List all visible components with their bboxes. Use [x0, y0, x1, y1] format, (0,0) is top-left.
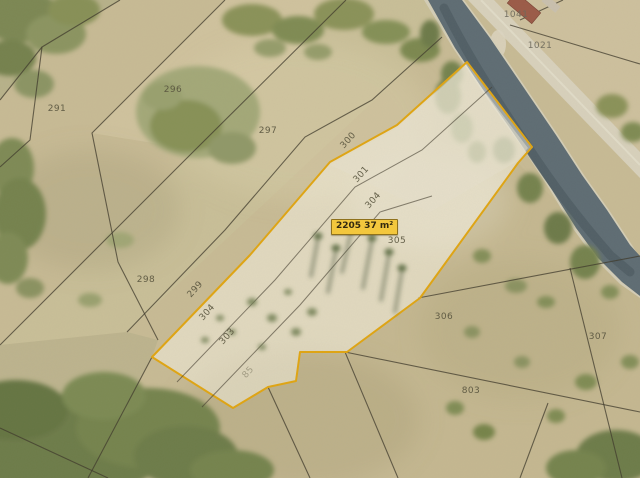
grain-overlay [0, 0, 640, 478]
parcel-label: 297 [259, 126, 277, 136]
parcel-label: 1041 [504, 10, 529, 20]
map-canvas[interactable]: 1041 1021 291 296 297 300 301 304 305 29… [0, 0, 640, 478]
parcel-label: 298 [137, 275, 155, 285]
parcel-label: 305 [388, 236, 406, 246]
parcel-label: 291 [48, 104, 66, 114]
area-measurement-value: 2205 37 m² [336, 221, 393, 231]
parcel-label: 306 [435, 312, 453, 322]
parcel-label: 307 [589, 332, 607, 342]
parcel-label: 296 [164, 85, 182, 95]
area-measurement-label: 2205 37 m² [331, 219, 398, 235]
parcel-label: 803 [462, 386, 480, 396]
parcel-label: 1021 [528, 41, 553, 51]
aerial-map-svg: 1041 1021 291 296 297 300 301 304 305 29… [0, 0, 640, 478]
